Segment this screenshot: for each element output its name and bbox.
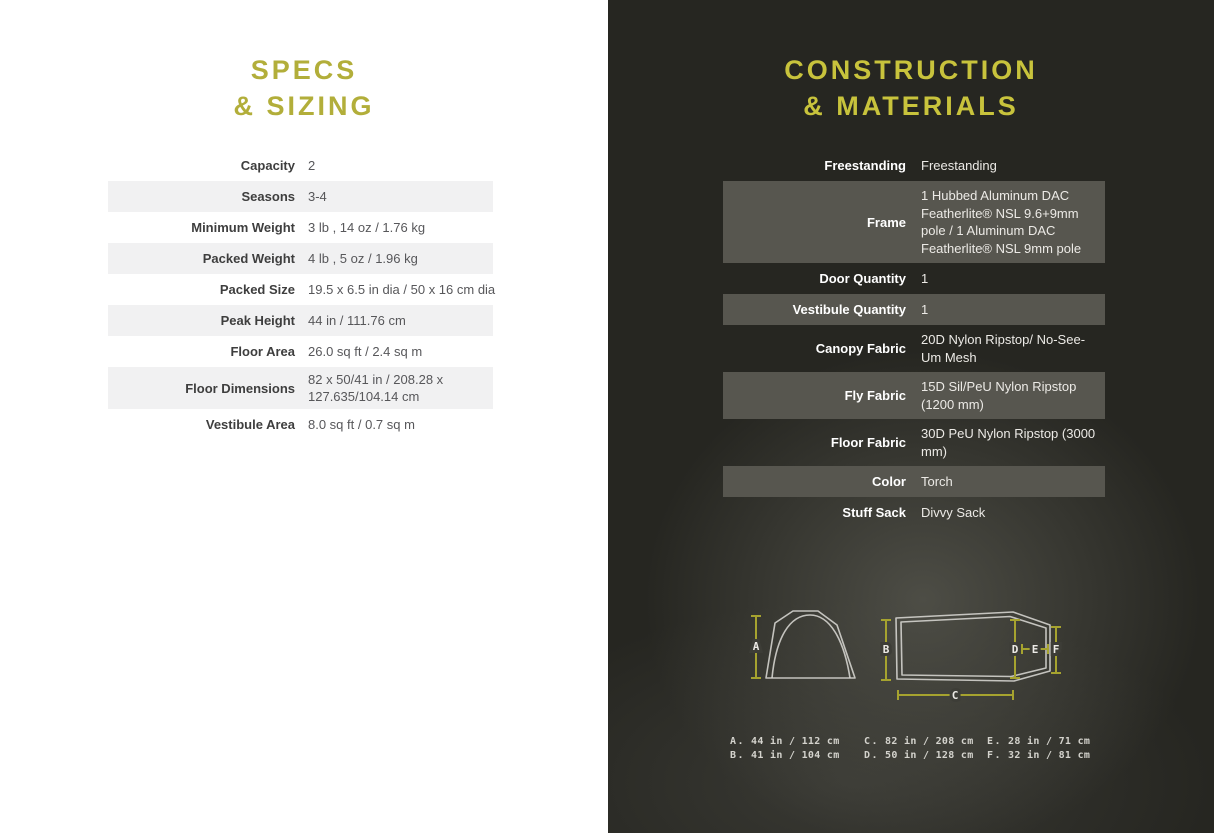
measure-a: A [751,616,761,678]
con-row-door-quantity: Door Quantity 1 [723,263,1105,294]
con-label: Fly Fabric [723,388,906,403]
dimension-column-2: C.82 in / 208 cm D.50 in / 128 cm [864,735,987,762]
measure-letter-d: D [1012,643,1019,656]
con-value: 1 [921,270,1096,288]
floor-plan-inner-outline [901,617,1046,677]
con-row-vestibule-quantity: Vestibule Quantity 1 [723,294,1105,325]
spec-row-capacity: Capacity 2 [108,150,493,181]
measure-e: E [1022,643,1048,656]
con-value: 15D Sil/PeU Nylon Ripstop (1200 mm) [921,378,1096,413]
measure-b: B [881,620,891,680]
spec-label: Seasons [108,189,295,204]
con-label: Door Quantity [723,271,906,286]
dimension-legend: A.44 in / 112 cm B.41 in / 104 cm C.82 i… [730,735,1150,762]
tent-front-fly-outline [772,615,850,678]
dimension-value: 41 in / 104 cm [751,750,840,761]
con-row-color: Color Torch [723,466,1105,497]
dimension-key: E. [987,736,1002,747]
con-label: Freestanding [723,158,906,173]
con-value: 30D PeU Nylon Ripstop (3000 mm) [921,425,1096,460]
dimension-value: 50 in / 128 cm [885,750,974,761]
con-value: 1 Hubbed Aluminum DAC Featherlite® NSL 9… [921,187,1096,257]
spec-label: Packed Weight [108,251,295,266]
tent-front-view [766,611,855,678]
spec-row-floor-area: Floor Area 26.0 sq ft / 2.4 sq m [108,336,493,367]
con-label: Floor Fabric [723,435,906,450]
spec-label: Vestibule Area [108,417,295,432]
spec-value: 3 lb , 14 oz / 1.76 kg [308,219,498,236]
measure-letter-b: B [883,643,890,656]
con-value: Divvy Sack [921,504,1096,522]
dimension-key: F. [987,750,1002,761]
spec-value: 4 lb , 5 oz / 1.96 kg [308,250,498,267]
con-row-stuff-sack: Stuff Sack Divvy Sack [723,497,1105,528]
measure-c: C [898,689,1013,702]
construction-materials-panel: CONSTRUCTION & MATERIALS Freestanding Fr… [608,0,1214,833]
specs-table: Capacity 2 Seasons 3-4 Minimum Weight 3 … [108,150,493,440]
construction-title-line2: & MATERIALS [803,91,1019,121]
dimension-e: E.28 in / 71 cm [987,735,1090,749]
spec-value: 8.0 sq ft / 0.7 sq m [308,416,498,433]
con-row-frame: Frame 1 Hubbed Aluminum DAC Featherlite®… [723,181,1105,263]
spec-value: 2 [308,157,498,174]
spec-row-floor-dimensions: Floor Dimensions 82 x 50/41 in / 208.28 … [108,367,493,409]
dimension-b: B.41 in / 104 cm [730,749,864,763]
dimension-column-1: A.44 in / 112 cm B.41 in / 104 cm [730,735,864,762]
spec-row-peak-height: Peak Height 44 in / 111.76 cm [108,305,493,336]
con-value: Torch [921,473,1096,491]
dimension-key: B. [730,750,745,761]
construction-title-line1: CONSTRUCTION [784,55,1038,85]
con-row-fly-fabric: Fly Fabric 15D Sil/PeU Nylon Ripstop (12… [723,372,1105,419]
spec-value: 19.5 x 6.5 in dia / 50 x 16 cm dia [308,281,498,298]
spec-label: Packed Size [108,282,295,297]
dimension-key: C. [864,736,879,747]
measure-letter-c: C [952,689,959,702]
spec-value: 26.0 sq ft / 2.4 sq m [308,343,498,360]
construction-table: Freestanding Freestanding Frame 1 Hubbed… [723,150,1105,528]
dimension-key: D. [864,750,879,761]
measure-f: F [1051,627,1061,673]
spec-label: Minimum Weight [108,220,295,235]
spec-label: Floor Area [108,344,295,359]
dimension-c: C.82 in / 208 cm [864,735,987,749]
con-label: Stuff Sack [723,505,906,520]
con-label: Canopy Fabric [723,341,906,356]
con-value: Freestanding [921,157,1096,175]
measure-d: D [1010,620,1020,678]
con-value: 20D Nylon Ripstop/ No-See-Um Mesh [921,331,1096,366]
con-row-floor-fabric: Floor Fabric 30D PeU Nylon Ripstop (3000… [723,419,1105,466]
specs-title-line1: SPECS [251,55,358,85]
spec-label: Peak Height [108,313,295,328]
spec-value: 44 in / 111.76 cm [308,312,498,329]
measure-letter-a: A [753,640,760,653]
spec-value: 82 x 50/41 in / 208.28 x 127.635/104.14 … [308,371,498,405]
specs-title-line2: & SIZING [233,91,374,121]
con-row-freestanding: Freestanding Freestanding [723,150,1105,181]
spec-sheet-page: SPECS & SIZING Capacity 2 Seasons 3-4 Mi… [0,0,1214,833]
con-row-canopy-fabric: Canopy Fabric 20D Nylon Ripstop/ No-See-… [723,325,1105,372]
dimension-f: F.32 in / 81 cm [987,749,1090,763]
tent-floor-plan-view [896,612,1050,681]
spec-row-minimum-weight: Minimum Weight 3 lb , 14 oz / 1.76 kg [108,212,493,243]
measure-letter-e: E [1032,643,1039,656]
spec-row-seasons: Seasons 3-4 [108,181,493,212]
spec-value: 3-4 [308,188,498,205]
spec-label: Capacity [108,158,295,173]
specs-sizing-panel: SPECS & SIZING Capacity 2 Seasons 3-4 Mi… [0,0,608,833]
con-label: Frame [723,215,906,230]
specs-sizing-title: SPECS & SIZING [0,52,608,124]
spec-label: Floor Dimensions [108,381,295,396]
dimension-value: 82 in / 208 cm [885,736,974,747]
dimension-key: A. [730,736,745,747]
con-value: 1 [921,301,1096,319]
dimension-a: A.44 in / 112 cm [730,735,864,749]
measure-letter-f: F [1053,643,1060,656]
con-label: Vestibule Quantity [723,302,906,317]
dimension-value: 28 in / 71 cm [1008,736,1090,747]
dimension-column-3: E.28 in / 71 cm F.32 in / 81 cm [987,735,1090,762]
dimension-value: 32 in / 81 cm [1008,750,1090,761]
con-label: Color [723,474,906,489]
spec-row-packed-weight: Packed Weight 4 lb , 5 oz / 1.96 kg [108,243,493,274]
dimension-d: D.50 in / 128 cm [864,749,987,763]
spec-row-vestibule-area: Vestibule Area 8.0 sq ft / 0.7 sq m [108,409,493,440]
dimension-value: 44 in / 112 cm [751,736,840,747]
construction-materials-title: CONSTRUCTION & MATERIALS [608,52,1214,124]
spec-row-packed-size: Packed Size 19.5 x 6.5 in dia / 50 x 16 … [108,274,493,305]
